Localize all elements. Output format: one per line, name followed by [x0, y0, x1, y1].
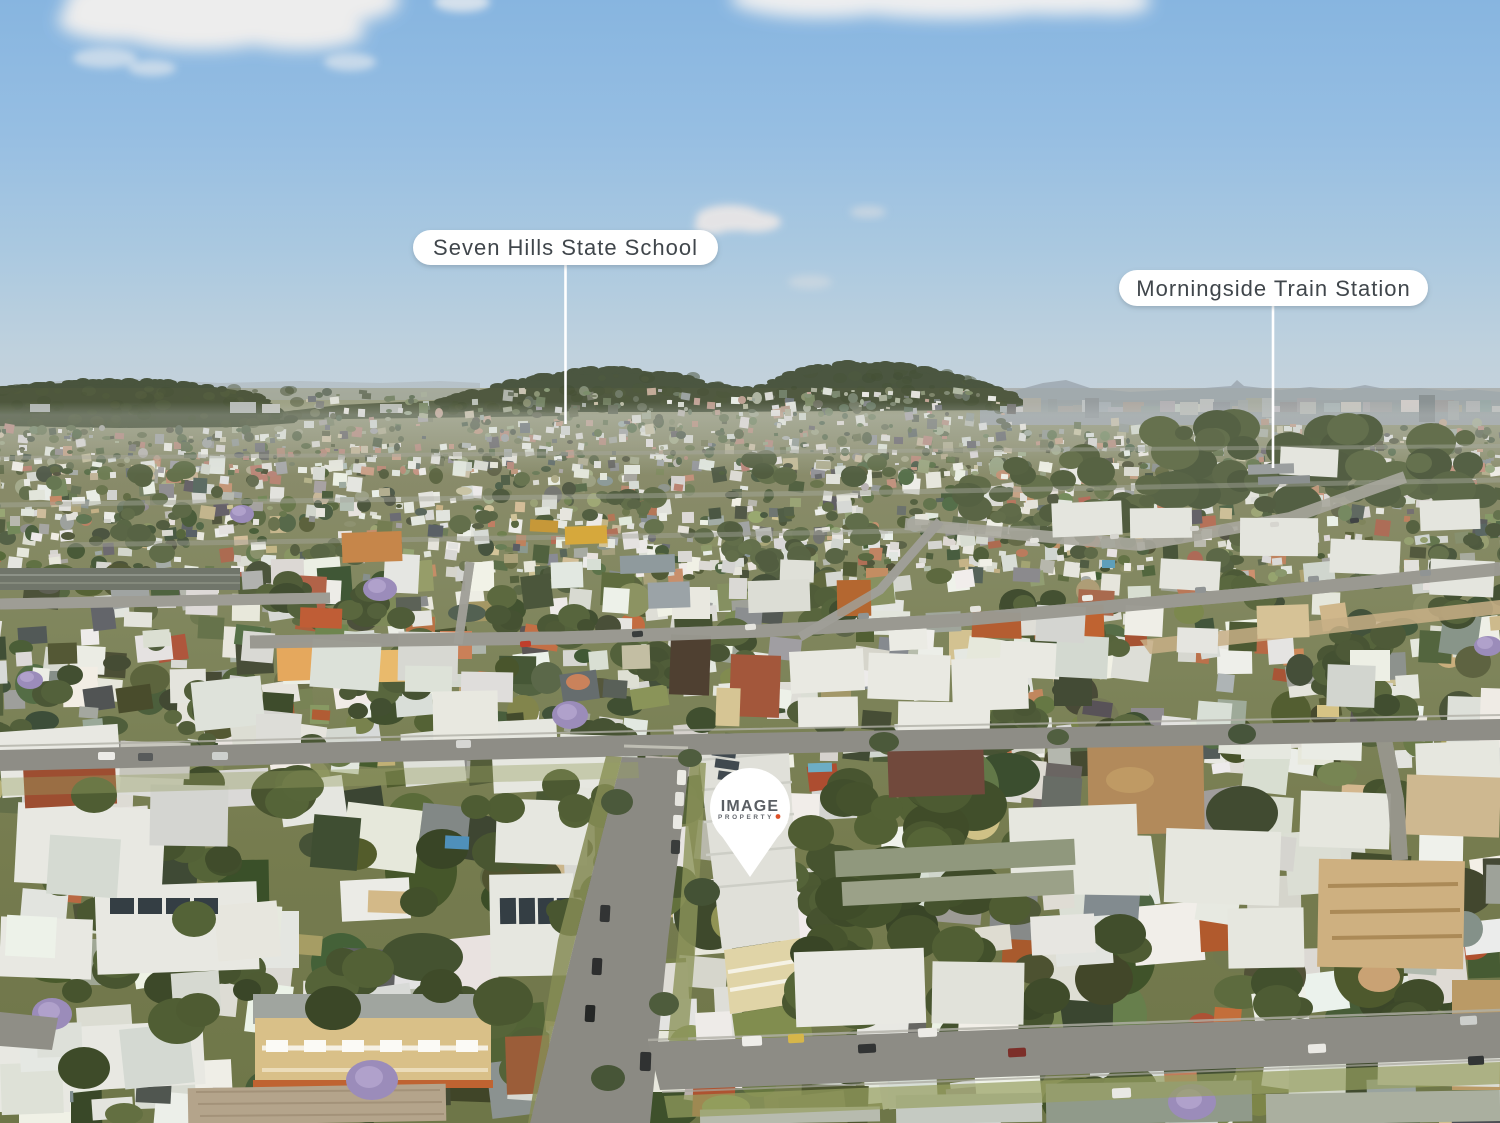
svg-text:IMAGE: IMAGE [721, 798, 779, 815]
svg-text:PROPERTY: PROPERTY [718, 814, 774, 821]
svg-text:Morningside Train Station: Morningside Train Station [1136, 276, 1410, 301]
svg-text:Seven Hills State School: Seven Hills State School [433, 235, 698, 260]
